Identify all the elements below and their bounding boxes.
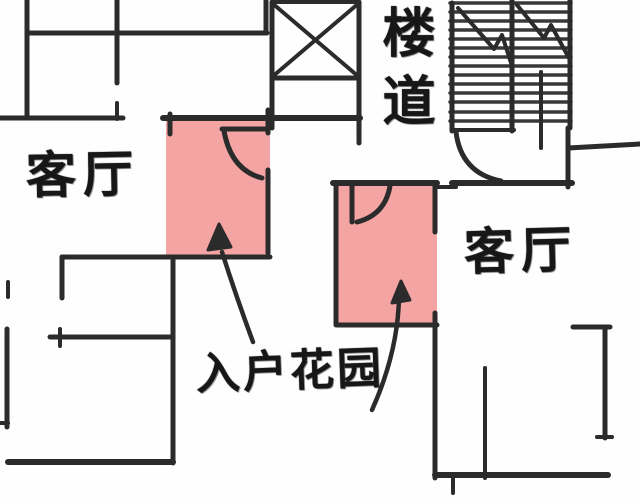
- label-living-room-left: 客厅: [26, 149, 141, 201]
- door-arc-stairwell: [456, 132, 501, 181]
- floorplan: 客厅 客厅 楼道 入户花园: [0, 0, 640, 503]
- label-stairwell: 楼道: [378, 5, 431, 141]
- label-entry-garden: 入户花园: [195, 347, 384, 398]
- arrow-line-left-garden: [222, 252, 253, 342]
- label-living-room-right: 客厅: [463, 225, 578, 278]
- wall-line: [568, 144, 640, 148]
